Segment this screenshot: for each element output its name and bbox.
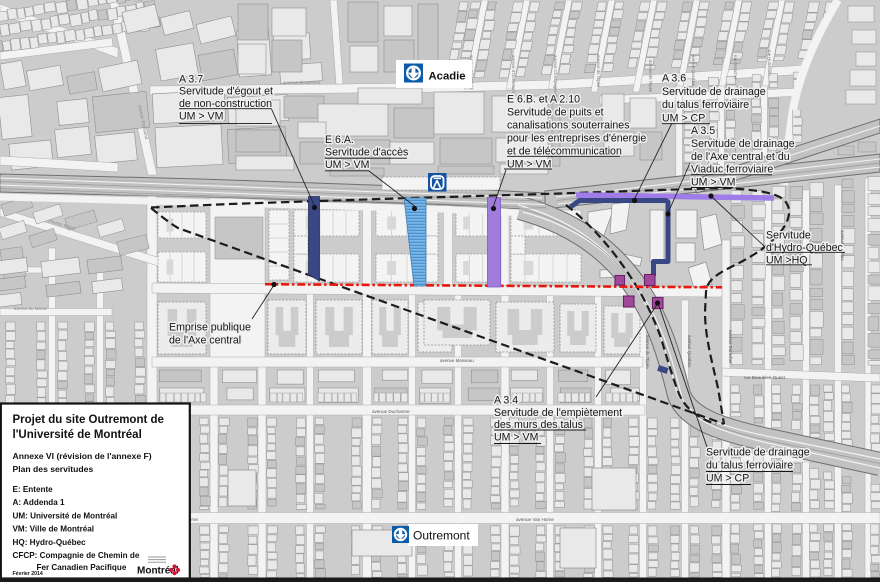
svg-text:UM > VM: UM > VM	[691, 177, 735, 189]
svg-text:Viaduc ferroviaire: Viaduc ferroviaire	[691, 164, 773, 176]
svg-text:Servitude de puits et: Servitude de puits et	[507, 107, 604, 119]
svg-text:A 3.6: A 3.6	[662, 73, 686, 85]
svg-text:A: Addenda 1: A: Addenda 1	[13, 498, 66, 507]
svg-text:du talus ferroviaire: du talus ferroviaire	[706, 460, 793, 472]
svg-text:Servitude de drainage: Servitude de drainage	[706, 447, 810, 459]
svg-text:Plan des servitudes: Plan des servitudes	[13, 464, 94, 474]
svg-text:du talus ferroviaire: du talus ferroviaire	[662, 99, 749, 111]
svg-text:UM > VM: UM > VM	[325, 159, 369, 171]
svg-text:avenue Beaumont: avenue Beaumont	[283, 80, 321, 85]
svg-text:de l'Axe central et du: de l'Axe central et du	[691, 151, 790, 163]
svg-text:avenue Manseau: avenue Manseau	[440, 358, 474, 363]
svg-text:de l'Axe central: de l'Axe central	[169, 334, 241, 346]
svg-text:rue Durocher: rue Durocher	[733, 55, 738, 80]
svg-text:canalisations souterraines: canalisations souterraines	[507, 120, 630, 132]
svg-text:A 3.7: A 3.7	[179, 73, 203, 85]
svg-text:avenue d'Outremont: avenue d'Outremont	[511, 55, 516, 94]
svg-text:E 6.A.: E 6.A.	[325, 134, 354, 146]
svg-text:Servitude de drainage: Servitude de drainage	[691, 138, 795, 150]
svg-text:avenue Querbes: avenue Querbes	[691, 55, 696, 86]
svg-text:Servitude d'égout et: Servitude d'égout et	[179, 86, 273, 98]
svg-text:des murs des talus: des murs des talus	[494, 419, 583, 431]
svg-text:avenue du Manoir: avenue du Manoir	[14, 306, 48, 311]
svg-text:UM > VM: UM > VM	[494, 431, 538, 443]
svg-text:UM: Université de Montréal: UM: Université de Montréal	[13, 511, 118, 520]
svg-text:Servitude d'accès: Servitude d'accès	[325, 146, 408, 158]
svg-text:Servitude de l'empiètement: Servitude de l'empiètement	[494, 407, 622, 419]
svg-text:Fer Canadien Pacifique: Fer Canadien Pacifique	[37, 563, 127, 572]
svg-text:Emprise publique: Emprise publique	[169, 322, 251, 334]
svg-text:avenue Ducharme: avenue Ducharme	[372, 409, 410, 414]
svg-text:rue Hutchison: rue Hutchison	[767, 50, 772, 77]
svg-text:avenue de l'Épée: avenue de l'Épée	[648, 60, 653, 93]
svg-text:avenue Champagneur: avenue Champagneur	[553, 55, 558, 97]
svg-text:et de télécommunication: et de télécommunication	[507, 146, 622, 158]
svg-text:Acadie: Acadie	[429, 71, 466, 83]
svg-text:UM > VM: UM > VM	[179, 111, 223, 123]
svg-text:avenue Querbes: avenue Querbes	[687, 335, 692, 368]
svg-text:CFCP: Compagnie de Chemin de: CFCP: Compagnie de Chemin de	[13, 551, 140, 560]
svg-text:UM > CP: UM > CP	[662, 112, 705, 124]
svg-text:Annexe VI (révision de l'annex: Annexe VI (révision de l'annexe F)	[13, 451, 152, 461]
svg-text:rue Beaubien Ouest: rue Beaubien Ouest	[744, 375, 786, 380]
svg-text:Février 2014: Février 2014	[13, 571, 43, 577]
svg-text:avenue Durocher: avenue Durocher	[728, 330, 733, 364]
svg-text:A 3.5: A 3.5	[691, 125, 715, 137]
svg-text:UM > CP: UM > CP	[706, 473, 749, 485]
svg-text:E 6.B. et A 2.10: E 6.B. et A 2.10	[507, 94, 580, 106]
svg-text:Servitude: Servitude	[766, 229, 811, 241]
svg-text:Outremont: Outremont	[413, 529, 470, 543]
svg-text:E: Entente: E: Entente	[13, 485, 54, 494]
svg-text:HQ: Hydro-Québec: HQ: Hydro-Québec	[13, 538, 87, 547]
svg-text:avenue Van Horne: avenue Van Horne	[516, 517, 554, 522]
svg-text:VM: Ville de Montréal: VM: Ville de Montréal	[13, 525, 95, 534]
svg-text:l'Université de Montréal: l'Université de Montréal	[13, 429, 142, 441]
svg-text:pour les entreprises d'énergie: pour les entreprises d'énergie	[507, 133, 646, 145]
svg-text:avenue de l'Épée: avenue de l'Épée	[596, 55, 601, 88]
svg-text:Projet du site Outremont de: Projet du site Outremont de	[13, 414, 164, 426]
svg-text:Servitude de drainage: Servitude de drainage	[662, 86, 766, 98]
svg-text:avenue de l'Épée: avenue de l'Épée	[645, 335, 650, 369]
svg-text:A 3.4: A 3.4	[494, 395, 518, 407]
